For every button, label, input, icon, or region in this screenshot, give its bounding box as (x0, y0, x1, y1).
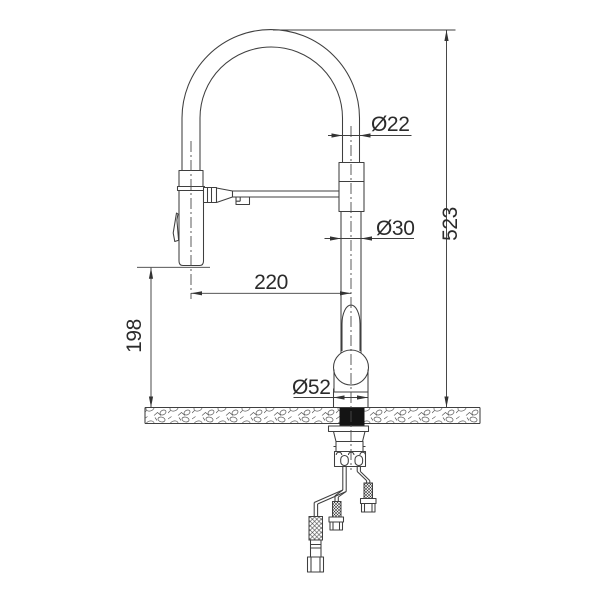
countertop-hatch (145, 408, 480, 424)
threaded-shank-section (340, 409, 364, 427)
dimension-spray-outlet-height: 198 (123, 267, 210, 407)
dim-label-diameter-30: Ø30 (376, 217, 415, 240)
dim-label-523: 523 (439, 207, 462, 241)
arrowhead (332, 133, 343, 137)
body-collar (339, 163, 364, 212)
spray-head-lever (173, 213, 178, 242)
dimension-spout-reach: 220 (191, 271, 351, 295)
spray-holder-arm (204, 188, 346, 205)
right-stud-washer (361, 499, 377, 504)
dimension-hose-tube-diameter: Ø22 (328, 113, 412, 138)
technical-drawing-page: Ø22 Ø30 220 198 523 Ø52 (0, 0, 600, 600)
arrowhead (360, 133, 371, 137)
braided-hose (308, 517, 324, 573)
dim-label-198: 198 (123, 319, 146, 353)
middle-stud-washer (329, 517, 344, 522)
arch-outer-arc (182, 30, 360, 118)
supply-connector-right (361, 483, 377, 512)
arrowhead (191, 291, 202, 295)
dimension-body-tube-diameter: Ø30 (325, 217, 415, 241)
arrowhead (340, 291, 351, 295)
braided-section (309, 517, 323, 541)
spray-head (173, 171, 204, 266)
dim-label-diameter-22: Ø22 (371, 113, 410, 136)
holder-coupler-taper (217, 188, 233, 203)
mounting-nut (334, 432, 366, 442)
right-stud-body (362, 504, 376, 513)
arrowhead (444, 397, 448, 408)
right-stud-thread (364, 483, 373, 499)
holder-bar (233, 191, 346, 197)
mounting-washer (329, 426, 369, 432)
arrowhead (330, 236, 341, 240)
mounting-sleeve (336, 442, 363, 452)
holder-tab (236, 197, 250, 205)
spout-arch (182, 30, 360, 118)
dimension-overall-height: 523 (273, 30, 462, 408)
middle-stud-body (330, 522, 343, 530)
faucet-technical-drawing: Ø22 Ø30 220 198 523 Ø52 (0, 0, 600, 600)
arrowhead (149, 397, 153, 408)
dim-label-220: 220 (254, 271, 288, 294)
middle-stud-thread (333, 502, 342, 518)
mounting-shank (340, 409, 364, 427)
dim-label-diameter-52: Ø52 (292, 376, 331, 399)
supply-connector-middle (329, 502, 344, 531)
arrowhead (444, 30, 448, 41)
hose-end-fitting (308, 557, 324, 572)
mounting-hardware (329, 426, 369, 467)
holder-coupler-block (204, 188, 217, 203)
arrowhead (149, 268, 153, 279)
arrowhead (361, 236, 372, 240)
countertop (145, 408, 480, 424)
hose-right-drop (357, 467, 370, 484)
hose-bracket (335, 452, 366, 467)
arch-inner-arc (200, 47, 343, 118)
hose-left-drop (343, 467, 346, 492)
